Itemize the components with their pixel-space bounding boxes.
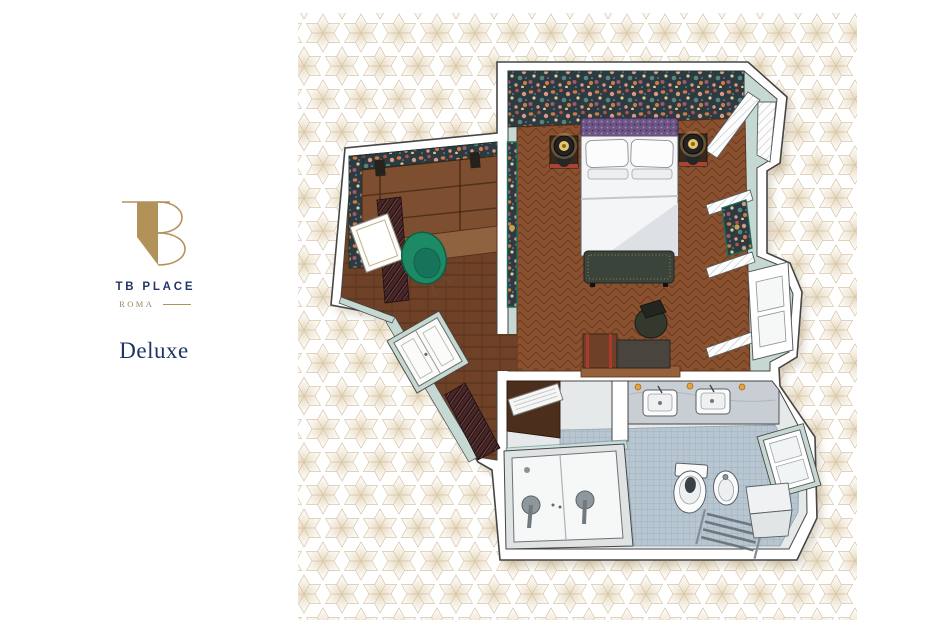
- artwork-emblem-2: [734, 224, 739, 229]
- room-label: Deluxe: [98, 338, 210, 364]
- marble-step: [746, 483, 792, 538]
- monogram-stem: [137, 202, 158, 265]
- brand-rule: [163, 304, 191, 305]
- headboard: [581, 118, 678, 138]
- brand-city: ROMA: [117, 299, 155, 309]
- brand-block: TB PLACE ROMA Deluxe: [98, 199, 210, 364]
- left-wall-artwork-panel: [508, 142, 518, 307]
- brand-name: TB PLACE: [98, 281, 210, 293]
- bedroom-doorway: [494, 334, 517, 371]
- desk-return: [617, 340, 670, 368]
- page: TB PLACE ROMA Deluxe: [0, 0, 950, 633]
- bathtub: [504, 440, 633, 549]
- sconce-icon: [687, 383, 693, 389]
- artwork-emblem: [509, 225, 515, 231]
- bedroom: [508, 71, 794, 377]
- brand-city-row: ROMA: [98, 299, 210, 309]
- partition-wall: [612, 381, 628, 441]
- sconce-icon: [635, 384, 641, 390]
- sink-right: [696, 385, 730, 414]
- radiator-cabinet: [748, 262, 793, 360]
- double-bed: [581, 118, 678, 256]
- sconce-icon: [739, 384, 745, 390]
- sink-left: [643, 386, 677, 416]
- pillow-right: [631, 139, 674, 167]
- pillow-left: [586, 139, 629, 167]
- tb-monogram-logo: [114, 199, 194, 269]
- foot-bench: [584, 251, 674, 287]
- vanity-wall: [625, 381, 779, 424]
- bathroom: [504, 381, 821, 559]
